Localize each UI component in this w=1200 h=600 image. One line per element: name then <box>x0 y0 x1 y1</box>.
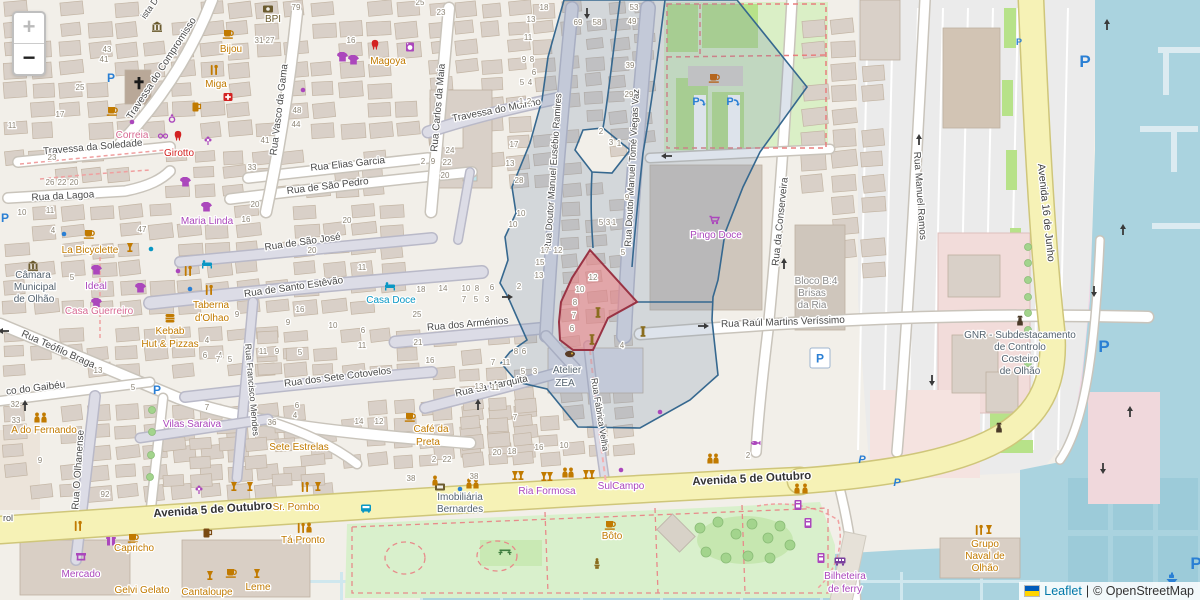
poi-label: ZEA <box>555 378 575 389</box>
house-number: 20 <box>441 171 450 180</box>
house-number: 22 <box>443 455 452 464</box>
house-number: 22 <box>443 158 452 167</box>
dot-icon <box>619 468 624 473</box>
osm-link[interactable]: © OpenStreetMap <box>1093 584 1194 598</box>
house-number: 9 <box>286 318 291 327</box>
Psq-icon: P <box>810 348 830 368</box>
house-number: 79 <box>292 3 301 12</box>
svg-text:P: P <box>1079 52 1090 71</box>
poi-label: Câmara <box>15 270 51 281</box>
poi-label: BPI <box>265 14 281 25</box>
poi-label: A do Fernando <box>11 425 77 436</box>
dot-icon <box>176 269 181 274</box>
house-number: 7 <box>462 295 467 304</box>
Pi-icon: P <box>858 454 866 466</box>
poi-label: de Olhão <box>14 294 55 305</box>
svg-text:P: P <box>893 477 901 489</box>
house-number: 25 <box>76 83 85 92</box>
poi-label: Olhão <box>972 563 999 574</box>
person-icon <box>707 454 712 464</box>
house-number: 16 <box>535 443 544 452</box>
house-number: 11 <box>8 121 17 130</box>
poi-label: Mercado <box>62 569 101 580</box>
poi-label: Capricho <box>114 543 154 554</box>
poi-label: d'Olhao <box>195 313 230 324</box>
house-number: 2 <box>599 127 604 136</box>
house-number: 16 <box>242 215 251 224</box>
person-icon <box>802 484 807 494</box>
poi-label: Preta <box>416 437 440 448</box>
house-number: 29 <box>625 90 634 99</box>
poi-label: La Bicyclette <box>62 245 119 256</box>
person-icon <box>306 523 311 533</box>
poi-label: de Controlo <box>994 342 1046 353</box>
house-number: 1 <box>617 139 622 148</box>
poi-label: Naval de <box>965 551 1005 562</box>
house-number: 6 <box>295 401 300 410</box>
house-number: 9 <box>431 157 436 166</box>
poi-label: Leme <box>245 582 270 593</box>
house-number: 9 <box>38 456 43 465</box>
burger-icon <box>166 314 175 323</box>
house-number: 18 <box>508 447 517 456</box>
house-number: 2 <box>527 97 532 106</box>
dot-icon <box>658 410 663 415</box>
house-number: 69 <box>574 18 583 27</box>
svg-text:P: P <box>1190 554 1200 573</box>
dot-icon <box>62 232 67 237</box>
house-number: 7 <box>572 311 577 320</box>
house-number: 11 <box>46 206 55 215</box>
laundry-icon <box>406 43 414 52</box>
house-number: 17 <box>56 110 65 119</box>
machine-icon <box>795 500 802 510</box>
poi-label: Bôto <box>602 531 623 542</box>
house-number: 36 <box>268 418 277 427</box>
house-number: 5 <box>131 383 136 392</box>
poi-label: Bernardes <box>437 504 483 515</box>
svg-text:P: P <box>1016 37 1022 47</box>
house-number: 9 <box>625 193 630 202</box>
house-number: 23 <box>437 8 446 17</box>
person-icon <box>568 468 573 478</box>
house-number: 4 <box>620 341 625 350</box>
house-number: 11 <box>358 341 367 350</box>
house-number: 9 <box>235 310 240 319</box>
house-number: 17 <box>510 140 519 149</box>
house-number: 4 <box>293 411 298 420</box>
poi-label: Atelier <box>553 365 582 376</box>
person-icon <box>34 413 39 423</box>
house-number: 12 <box>375 417 384 426</box>
house-number: 31 <box>255 36 264 45</box>
street-label: rol <box>3 513 13 523</box>
house-number: 6 <box>361 326 366 335</box>
house-number: 1 <box>612 218 617 227</box>
poi-label: de ferry <box>828 584 862 595</box>
poi-label: Vilas Saraiva <box>163 419 222 430</box>
house-number: 3 <box>533 367 538 376</box>
house-number: 32 <box>11 400 20 409</box>
house-number: 5 <box>228 355 233 364</box>
Pb-icon: P <box>1098 337 1109 356</box>
police-icon <box>996 423 1002 433</box>
house-number: 12 <box>554 246 563 255</box>
house-number: 49 <box>628 17 637 26</box>
poi-label: Cantaloupe <box>181 587 233 598</box>
svg-text:P: P <box>726 96 733 108</box>
house-number: 17 <box>541 246 550 255</box>
svg-text:P: P <box>153 383 161 397</box>
poi-label: Casa Doce <box>366 295 416 306</box>
house-number: 13 <box>535 271 544 280</box>
house-number: 11 <box>491 383 500 392</box>
house-number: 5 <box>474 295 479 304</box>
house-number: 2 <box>517 282 522 291</box>
bank-icon <box>263 6 273 13</box>
attribution-bar: Leaflet | © OpenStreetMap <box>1019 582 1200 600</box>
house-number: 7 <box>216 355 221 364</box>
house-number: 11 <box>259 347 268 356</box>
svg-text:P: P <box>816 352 824 366</box>
house-number: 13 <box>94 366 103 375</box>
poi-label: da Ria <box>798 300 827 311</box>
house-number: 10 <box>560 441 569 450</box>
house-number: 18 <box>540 3 549 12</box>
poi-label: Girotto <box>164 148 194 159</box>
house-number: 6 <box>522 347 527 356</box>
svg-text:P: P <box>692 96 699 108</box>
house-number: 4 <box>51 226 56 235</box>
poi-label: Bloco B:4 <box>795 276 838 287</box>
house-number: 6 <box>203 351 208 360</box>
svg-text:P: P <box>858 454 866 466</box>
house-number: 13 <box>527 15 536 24</box>
house-number: 48 <box>293 106 302 115</box>
house-number: 9 <box>275 347 280 356</box>
poi-label: SulCampo <box>598 481 645 492</box>
house-number: 39 <box>626 61 635 70</box>
house-number: 10 <box>517 209 526 218</box>
house-number: 21 <box>414 338 423 347</box>
house-number: 8 <box>514 347 519 356</box>
poi-label: Ria Formosa <box>518 486 576 497</box>
house-number: 11 <box>524 33 533 42</box>
house-number: 6 <box>570 324 575 333</box>
house-number: 58 <box>593 18 602 27</box>
house-number: 13 <box>506 159 515 168</box>
house-number: 3 <box>609 138 614 147</box>
house-number: 38 <box>407 474 416 483</box>
house-number: 9 <box>522 55 527 64</box>
dot-icon <box>188 287 193 292</box>
poi-label: Casa Guerreiro <box>65 306 134 317</box>
house-number: 13 <box>475 382 484 391</box>
poi-label: Bijou <box>220 44 242 55</box>
poi-label: Gelvi Gelato <box>114 585 169 596</box>
house-number: 7 <box>205 403 210 412</box>
house-number: 33 <box>248 163 257 172</box>
Pi-icon: P <box>893 477 901 489</box>
person-icon <box>432 476 437 486</box>
house-number: 22 <box>58 178 67 187</box>
house-number: 10 <box>576 285 585 294</box>
house-number: 20 <box>343 216 352 225</box>
house-number: 10 <box>329 321 338 330</box>
house-number: 27 <box>266 36 275 45</box>
house-number: 3 <box>485 295 490 304</box>
Pb-icon: P <box>1190 554 1200 573</box>
poi-label: Magoya <box>370 56 406 67</box>
poi-label: GNR - Subdestacamento <box>964 330 1076 341</box>
poi-label: Sr. Pombo <box>273 502 320 513</box>
ukraine-flag-icon <box>1024 585 1040 597</box>
poi-label: Kebab <box>156 326 185 337</box>
poi-label: Pingo Doce <box>690 230 742 241</box>
house-number: 16 <box>296 305 305 314</box>
person-icon <box>794 484 799 494</box>
police-icon <box>1017 316 1023 326</box>
leaflet-link[interactable]: Leaflet <box>1044 584 1082 598</box>
house-number: 92 <box>101 490 110 499</box>
house-number: 5 <box>70 273 75 282</box>
house-number: 10 <box>509 220 518 229</box>
poi-label: Grupo <box>971 539 999 550</box>
house-number: 15 <box>536 258 545 267</box>
machine-icon <box>805 518 812 528</box>
poi-label: Brisas <box>798 288 826 299</box>
house-number: 23 <box>48 153 57 162</box>
house-number: 20 <box>251 200 260 209</box>
poi-label: Miga <box>205 79 227 90</box>
attribution-separator: | <box>1086 584 1089 598</box>
house-number: 5 <box>599 218 604 227</box>
house-number: 24 <box>446 146 455 155</box>
person-icon <box>713 454 718 464</box>
zoom-out-button[interactable]: − <box>14 44 44 74</box>
house-number: 47 <box>138 225 147 234</box>
poi-label: Correia <box>116 130 149 141</box>
house-number: 1 <box>519 97 524 106</box>
house-number: 10 <box>18 208 27 217</box>
poi-label: Imobiliária <box>437 492 483 503</box>
P-icon: P <box>153 383 161 397</box>
person-icon <box>562 468 567 478</box>
poi-label: Sete Estrelas <box>269 442 328 453</box>
P-icon: P <box>1 211 9 225</box>
house-number: 2 <box>746 451 751 460</box>
house-number: 38 <box>470 472 479 481</box>
house-number: 16 <box>426 356 435 365</box>
p-icon: P <box>1016 37 1022 47</box>
house-number: 41 <box>261 136 270 145</box>
poi-label: de Olhão <box>1000 366 1041 377</box>
house-number: 6 <box>532 68 537 77</box>
house-number: 3 <box>606 218 611 227</box>
house-number: 7 <box>513 413 518 422</box>
zoom-control: + − <box>12 11 46 76</box>
firstaid-icon <box>224 93 233 101</box>
house-number: 12 <box>589 273 598 282</box>
svg-text:P: P <box>1098 337 1109 356</box>
poi-label: Bilheteira <box>824 571 866 582</box>
house-number: 16 <box>347 36 356 45</box>
house-number: 8 <box>530 55 535 64</box>
poi-label: Costeiro <box>1001 354 1039 365</box>
house-number: 41 <box>100 55 109 64</box>
P-icon: P <box>107 71 115 85</box>
map-svg: PPPPPPPPPPPPista DTravessa do Compromiss… <box>0 0 1200 600</box>
house-number: 14 <box>355 417 364 426</box>
house-number: 4 <box>205 336 210 345</box>
poi-label: Tá Pronto <box>281 535 325 546</box>
house-number: 25 <box>416 0 425 7</box>
poi-label: Maria Linda <box>181 216 234 227</box>
poi-label: Hut & Pizzas <box>141 339 198 350</box>
house-number: 10 <box>462 284 471 293</box>
house-number: 6 <box>490 283 495 292</box>
poi-label: Taberna <box>193 300 230 311</box>
poi-label: Municipal <box>14 282 56 293</box>
poi-label: Ideal <box>85 281 107 292</box>
house-number: 5 <box>520 78 525 87</box>
Pb-icon: P <box>1079 52 1090 71</box>
house-number: 43 <box>103 45 112 54</box>
svg-text:P: P <box>1 211 9 225</box>
dot-icon <box>149 247 154 252</box>
machine-icon <box>818 553 825 563</box>
zoom-in-button[interactable]: + <box>14 13 44 44</box>
house-number: 5 <box>621 248 626 257</box>
house-number: 20 <box>70 178 79 187</box>
house-number: 25 <box>413 310 422 319</box>
house-number: 20 <box>308 246 317 255</box>
house-number: 8 <box>475 284 480 293</box>
person-icon <box>41 413 46 423</box>
poi-label: Café da <box>413 424 448 435</box>
shoe-icon <box>565 351 575 357</box>
house-number: 53 <box>630 3 639 12</box>
house-number: 5 <box>521 367 526 376</box>
house-number: 26 <box>46 178 55 187</box>
house-number: 2 <box>432 455 437 464</box>
house-number: 14 <box>439 284 448 293</box>
house-number: 18 <box>417 285 426 294</box>
house-number: 11 <box>502 358 511 367</box>
house-number: 28 <box>515 176 524 185</box>
house-number: 20 <box>493 448 502 457</box>
house-number: 5 <box>298 348 303 357</box>
leaflet-map-canvas[interactable]: PPPPPPPPPPPPista DTravessa do Compromiss… <box>0 0 1200 600</box>
dot-icon <box>458 487 463 492</box>
house-number: 8 <box>573 298 578 307</box>
house-number: 11 <box>358 263 367 272</box>
house-number: 4 <box>528 78 533 87</box>
house-number: 44 <box>292 120 301 129</box>
house-number: 2 <box>421 157 426 166</box>
dot-icon <box>301 88 306 93</box>
house-number: 33 <box>12 416 21 425</box>
house-number: 7 <box>491 358 496 367</box>
svg-text:P: P <box>107 71 115 85</box>
